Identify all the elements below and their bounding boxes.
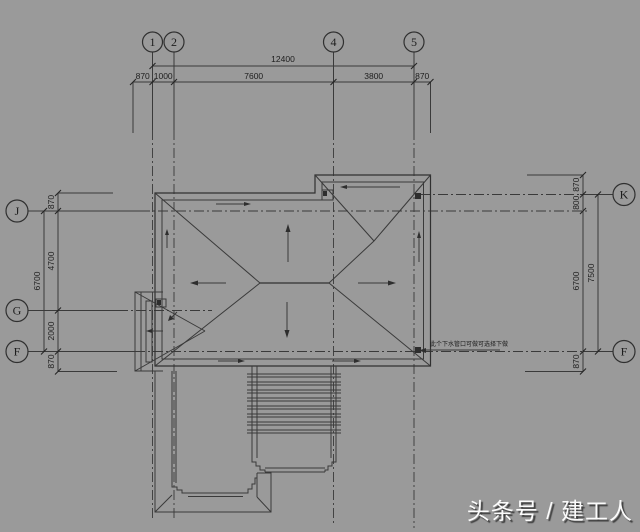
lower-bay-walls [172,371,257,497]
grid-bubble-K-label: K [620,188,629,202]
pergola-corbels [252,458,336,472]
downspout-top-right [415,193,421,199]
arrow-heads [146,185,421,363]
left-dimension-lines [44,193,117,372]
grid-bubble-G-label: G [13,304,22,318]
grid-bubble-F-right-label: F [621,345,628,359]
dim-top-seg-3: 3800 [364,71,383,81]
dim-top-overall: 12400 [271,54,295,64]
dim-right-overall: 7500 [586,263,596,282]
lower-bay-canopy [155,371,271,512]
roof-hip-valley-lines [155,175,431,366]
dim-top-seg-2: 7600 [244,71,263,81]
pergola-trellis [247,366,341,472]
dim-right-seg-2: 6700 [571,271,581,290]
dim-right-seg-3: 870 [571,354,581,368]
right-dimensions: 870 800 6700 870 7500 [525,172,601,375]
dim-top-seg-0: 870 [136,71,150,81]
slope-and-gutter-arrows [146,185,421,363]
dim-right-seg-0: 870 [571,177,581,191]
grid-bubble-4-label: 4 [331,35,337,49]
pergola-bars [247,374,341,433]
watermark-text: 头条号 / 建工人 [467,492,633,526]
roof-plan-page: 12400 870 1000 7600 3800 870 870 4700 20… [0,0,640,532]
roof-fascia-inner-line [162,182,424,359]
dim-left-seg-1: 4700 [46,251,56,270]
left-dimensions: 870 4700 2000 870 6700 [32,190,117,375]
main-roof [155,175,431,366]
dim-left-seg-3: 870 [46,354,56,368]
left-bay-vent-fill [157,300,161,305]
roof-eave-outline [155,175,431,366]
grid-bubble-J-label: J [15,204,20,218]
top-dimensions: 12400 870 1000 7600 3800 870 [130,54,434,85]
dim-top-seg-1: 1000 [154,71,173,81]
top-dimension-lines [133,66,431,82]
grid-stems-solid [28,52,613,352]
roof-plan-drawing: 12400 870 1000 7600 3800 870 870 4700 20… [0,0,640,532]
roof-vent-box-fill [323,191,327,196]
dim-right-seg-1: 800 [571,195,581,209]
annotation-text: 此个下水管口可做可选择下做 [430,340,508,348]
dim-left-seg-0: 870 [46,195,56,209]
grid-bubble-2-label: 2 [171,35,177,49]
grid-bubble-1-label: 1 [150,35,156,49]
pergola-rails [252,366,336,458]
dim-top-seg-4: 870 [415,71,429,81]
arrow-shafts [151,187,419,361]
grid-bubble-5-label: 5 [411,35,417,49]
grid-lines [28,52,613,528]
dim-left-overall: 6700 [32,271,42,290]
grid-bubble-F-left-label: F [14,345,21,359]
dim-left-seg-2: 2000 [46,321,56,340]
downspout-bottom-right [415,347,421,353]
